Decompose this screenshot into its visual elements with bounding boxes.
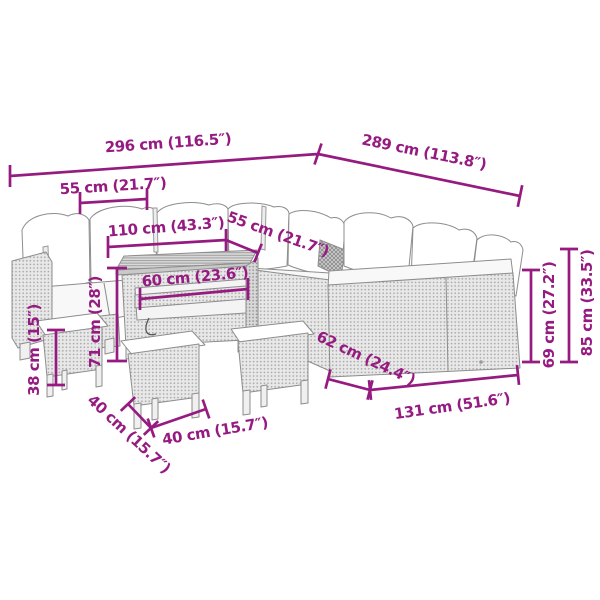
- dim-label-55-left: 55 cm (21.7″): [59, 174, 167, 198]
- stool-leg: [243, 390, 250, 415]
- dim-label-69: 69 cm (27.2″): [540, 262, 558, 369]
- dim-label-296: 296 cm (116.5″): [104, 130, 232, 157]
- dim-label-71: 71 cm (28″): [86, 276, 104, 368]
- stool-leg: [62, 370, 67, 390]
- dim-total-height: 85 cm (33.5″): [560, 249, 596, 362]
- furniture-dimension-diagram: 296 cm (116.5″) 289 cm (113.8″) 55 cm (2…: [0, 0, 600, 600]
- dim-label-131: 131 cm (51.6″): [393, 389, 511, 423]
- stool-leg: [301, 380, 308, 404]
- dim-label-38: 38 cm (15″): [25, 304, 43, 396]
- dim-back-height: 69 cm (27.2″): [522, 262, 558, 369]
- stool-body: [238, 333, 308, 393]
- stool-middle-right: [231, 321, 314, 415]
- stool-leg: [261, 385, 267, 407]
- stool-body: [128, 344, 199, 406]
- dim-line: [522, 270, 540, 362]
- dim-total-depth: 289 cm (113.8″): [318, 131, 522, 207]
- screenshot-root: 296 cm (116.5″) 289 cm (113.8″) 55 cm (2…: [0, 0, 600, 600]
- dim-stool-width: 40 cm (15.7″): [148, 400, 269, 449]
- dim-line: [560, 249, 578, 362]
- stool-leg: [152, 398, 158, 420]
- sofa-leg: [105, 338, 114, 354]
- weave-detail-dot: [479, 360, 483, 364]
- dim-line: [318, 154, 522, 207]
- dim-label-85: 85 cm (33.5″): [578, 250, 596, 357]
